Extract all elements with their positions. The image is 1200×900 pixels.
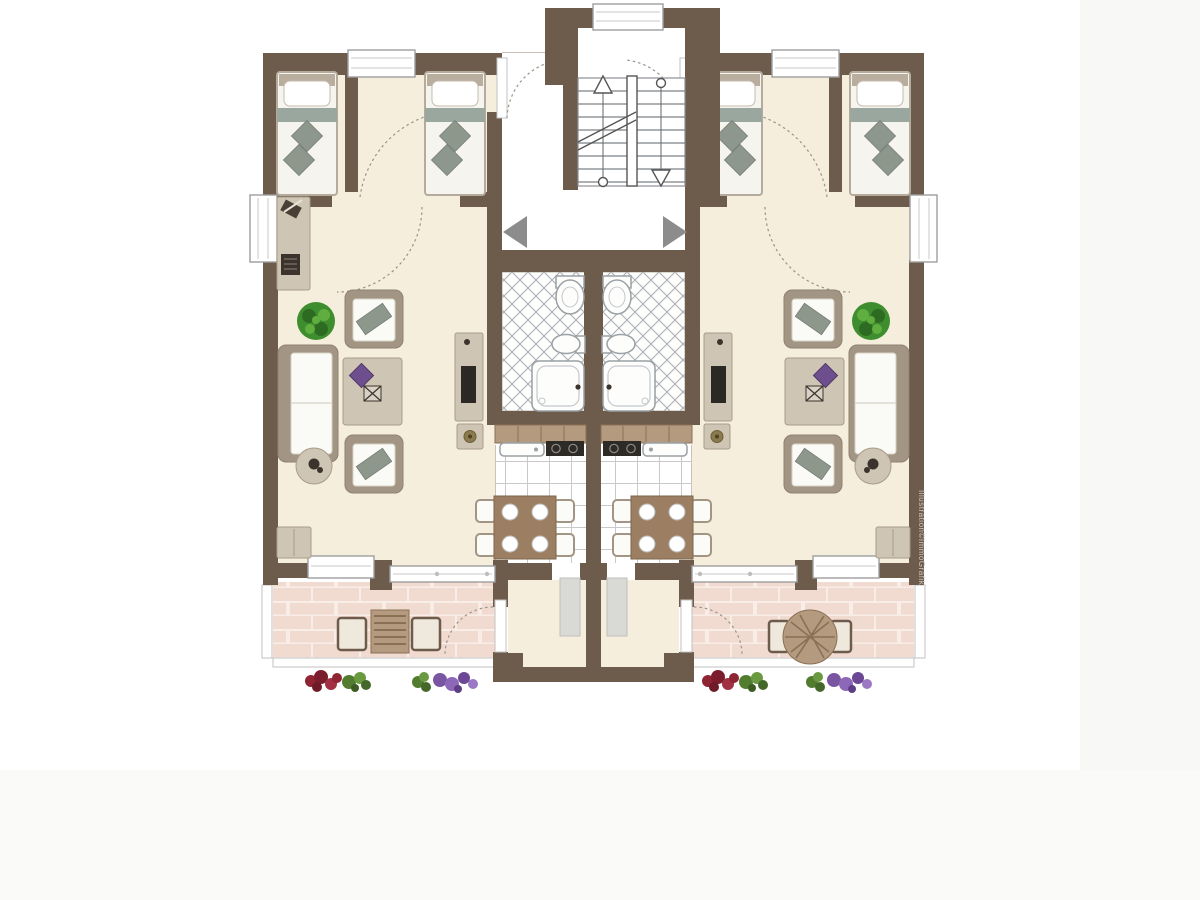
bed-2 (425, 72, 485, 195)
dining-table (494, 496, 556, 559)
stair-handrail (627, 76, 637, 186)
bed-1 (277, 72, 337, 195)
doormat (560, 578, 580, 636)
tv (461, 366, 476, 403)
terrace-chair (338, 618, 366, 650)
watermark-text: Illustration©ImmoGrafik (917, 490, 926, 586)
entry-door-leaf[interactable] (497, 58, 507, 118)
bathtub-faucet (575, 384, 580, 389)
terrace-door-leaf[interactable] (495, 600, 506, 652)
terrace-railing-front (273, 658, 500, 667)
page-margin-bottom (0, 770, 1200, 900)
bedroom-window (348, 50, 415, 77)
toilet (552, 335, 580, 354)
living-window (308, 556, 374, 578)
kitchen (495, 425, 586, 456)
terrace-railing-side (262, 585, 272, 658)
page-margin-right (1080, 0, 1200, 900)
wardrobe-unit (277, 197, 310, 290)
terrace-chair (412, 618, 440, 650)
side-window (250, 195, 277, 262)
washbasin (556, 280, 584, 314)
staircase (578, 76, 685, 187)
stairwell-window (593, 4, 663, 30)
floor-plan-image: Illustration©ImmoGrafik (0, 0, 1200, 900)
